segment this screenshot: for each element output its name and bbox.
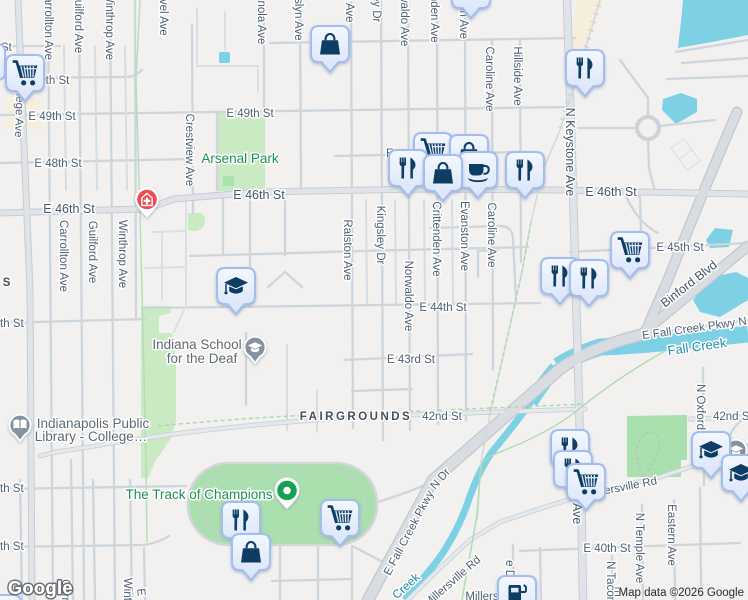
svg-text:Crittenden Ave: Crittenden Ave xyxy=(428,0,440,43)
svg-text:N Temple Ave: N Temple Ave xyxy=(633,513,645,584)
svg-text:Eastern Ave: Eastern Ave xyxy=(665,504,677,566)
svg-text:’S: ’S xyxy=(0,277,13,289)
svg-text:N Tacoma Ave: N Tacoma Ave xyxy=(604,561,616,600)
svg-text:Norwaldo Ave: Norwaldo Ave xyxy=(398,0,410,46)
svg-text:Library - College…: Library - College… xyxy=(35,429,148,444)
svg-text:for the Deaf: for the Deaf xyxy=(167,351,238,366)
svg-text:Roslyn Ave: Roslyn Ave xyxy=(292,0,304,41)
svg-text:E 49th St: E 49th St xyxy=(226,108,274,120)
svg-text:42nd St: 42nd St xyxy=(422,411,462,423)
svg-text:Carvel Ave: Carvel Ave xyxy=(157,0,169,36)
svg-text:Arsenal Park: Arsenal Park xyxy=(201,151,279,166)
svg-text:E 40th St: E 40th St xyxy=(583,543,631,555)
svg-text:E 46th St: E 46th St xyxy=(585,185,637,199)
svg-text:E 43rd St: E 43rd St xyxy=(387,354,436,366)
svg-text:Kingsley Dr: Kingsley Dr xyxy=(374,206,386,265)
svg-text:Winthrop Ave: Winthrop Ave xyxy=(121,578,133,600)
svg-text:Caroline Ave: Caroline Ave xyxy=(483,47,495,112)
svg-text:Map data ©2026 Google: Map data ©2026 Google xyxy=(619,587,744,599)
svg-text:E 4: E 4 xyxy=(134,588,148,600)
svg-text:th St: th St xyxy=(0,318,24,330)
svg-text:Carrollton Ave: Carrollton Ave xyxy=(42,0,54,60)
svg-text:Evanston Ave: Evanston Ave xyxy=(458,201,470,271)
svg-text:Ralston Ave: Ralston Ave xyxy=(343,0,355,23)
svg-text:th St: th St xyxy=(0,541,24,553)
svg-text:Indiana School: Indiana School xyxy=(152,337,241,352)
svg-text:E 46th St: E 46th St xyxy=(43,202,95,216)
svg-text:Ralston Ave: Ralston Ave xyxy=(341,219,353,280)
svg-text:E 45th St: E 45th St xyxy=(656,242,704,254)
svg-text:N Keystone Ave: N Keystone Ave xyxy=(563,108,577,197)
svg-text:Norwaldo Ave: Norwaldo Ave xyxy=(402,261,414,332)
svg-text:Kingsley Dr: Kingsley Dr xyxy=(370,0,382,23)
svg-text:The Track of Champions: The Track of Champions xyxy=(125,487,272,502)
svg-text:Carrollton Ave: Carrollton Ave xyxy=(57,220,69,292)
svg-text:E 44th St: E 44th St xyxy=(419,302,467,314)
svg-text:Guilford Ave: Guilford Ave xyxy=(86,221,98,283)
svg-text:Guilford Ave: Guilford Ave xyxy=(72,0,84,53)
svg-text:Crittenden Ave: Crittenden Ave xyxy=(430,201,442,276)
svg-text:Hillside Ave: Hillside Ave xyxy=(511,46,523,105)
svg-text:Winthrop Ave: Winthrop Ave xyxy=(116,220,128,288)
svg-text:Crestview Ave: Crestview Ave xyxy=(183,114,195,187)
svg-text:E 49th St: E 49th St xyxy=(28,111,76,123)
svg-text:FAIRGROUNDS: FAIRGROUNDS xyxy=(300,411,412,423)
svg-text:th St: th St xyxy=(0,483,24,495)
svg-text:Caroline Ave: Caroline Ave xyxy=(485,203,497,268)
svg-text:Millers: Millers xyxy=(465,591,498,600)
svg-text:Winthrop Ave: Winthrop Ave xyxy=(103,0,115,60)
svg-text:E 46th St: E 46th St xyxy=(233,188,285,202)
svg-text:Google: Google xyxy=(8,578,73,598)
svg-text:Indianola Ave: Indianola Ave xyxy=(255,0,267,44)
svg-text:42nd St: 42nd St xyxy=(713,411,748,423)
svg-text:E 48th St: E 48th St xyxy=(34,158,82,170)
